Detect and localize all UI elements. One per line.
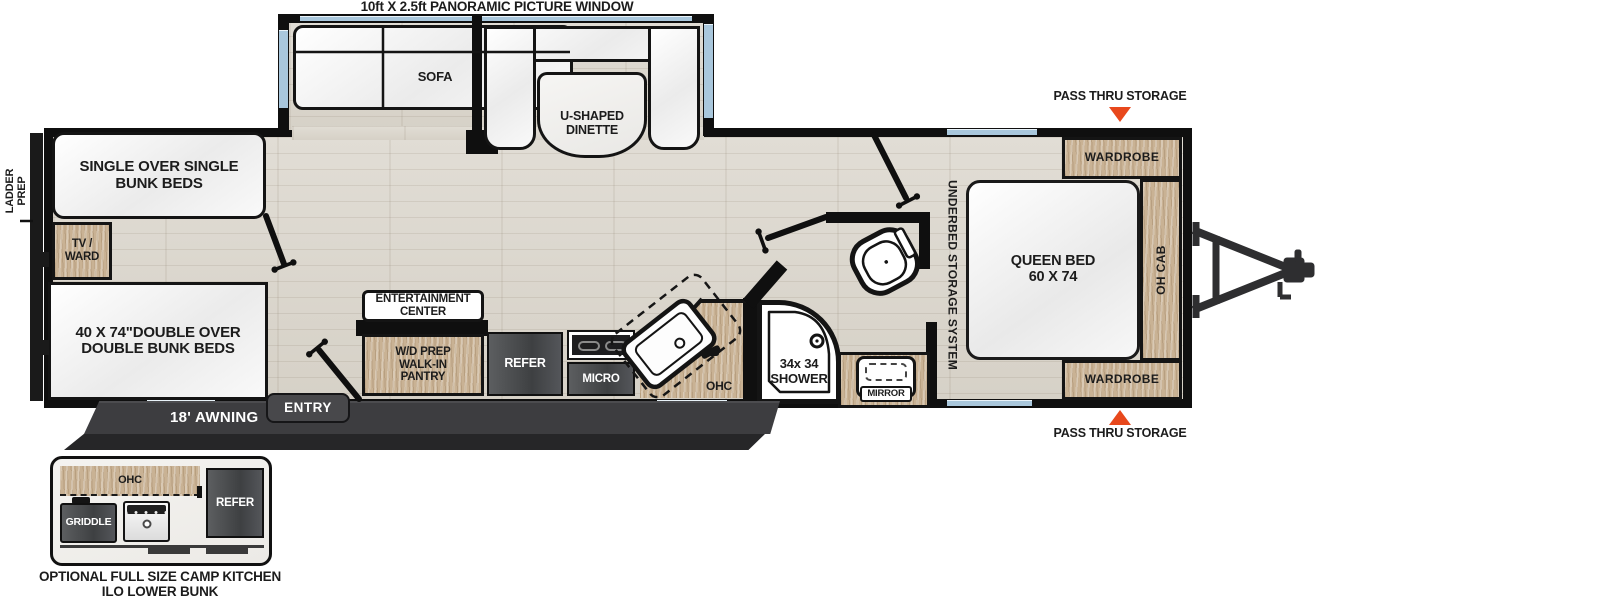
double-bunk-beds: 40 X 74"DOUBLE OVER DOUBLE BUNK BEDS xyxy=(48,282,268,400)
queen-bed: QUEEN BED 60 X 74 xyxy=(966,180,1140,360)
mirror-glass xyxy=(865,363,907,381)
awning-lower-rail xyxy=(64,433,766,450)
tv-ward-cabinet: TV / WARD xyxy=(52,222,112,280)
mirror-label-box: MIRROR xyxy=(860,386,912,402)
oh-cab: OH CAB xyxy=(1140,179,1182,361)
inset-griddle: GRIDDLE xyxy=(60,503,117,543)
burner-right xyxy=(605,341,627,351)
inset-caption: OPTIONAL FULL SIZE CAMP KITCHEN ILO LOWE… xyxy=(20,569,300,599)
pantry-label: W/D PREP WALK-IN PANTRY xyxy=(395,346,450,384)
entertainment-center: ENTERTAINMENT CENTER xyxy=(362,290,484,322)
pass-thru-bottom-arrow xyxy=(1109,410,1131,425)
griddle-label: GRIDDLE xyxy=(66,517,112,529)
entertainment-label: ENTERTAINMENT CENTER xyxy=(376,293,471,318)
pass-thru-bottom-label: PASS THRU STORAGE xyxy=(1040,427,1200,441)
pass-thru-top-label: PASS THRU STORAGE xyxy=(1040,90,1200,104)
shower-label: 34x 34 SHOWER xyxy=(762,357,836,386)
front-top-window xyxy=(947,129,1037,135)
panoramic-window xyxy=(300,16,692,21)
bath-wall-left xyxy=(743,298,757,402)
inset-ohc-cabinet: OHC xyxy=(60,466,200,496)
bath-wall-right-upper xyxy=(919,212,930,269)
tv-ward-label: TV / WARD xyxy=(65,238,99,263)
bumper-tab-lower xyxy=(43,340,49,355)
wardrobe-bottom: WARDROBE xyxy=(1062,360,1182,400)
floorplan-canvas: 10ft X 2.5ft PANORAMIC PICTURE WINDOW SO… xyxy=(0,0,1600,600)
bumper-tab-upper xyxy=(43,252,49,267)
micro-label: MICRO xyxy=(582,373,619,386)
bath-wall-top xyxy=(826,212,930,223)
coupler-latch xyxy=(1295,250,1301,262)
refer-appliance: REFER xyxy=(487,332,563,396)
wardrobe-top: WARDROBE xyxy=(1062,137,1182,179)
entry-label: ENTRY xyxy=(284,401,332,416)
micro-appliance: MICRO xyxy=(567,362,635,396)
queen-bed-label: QUEEN BED 60 X 74 xyxy=(1011,254,1095,286)
inset-ohc-label: OHC xyxy=(118,474,142,486)
double-bunk-label: 40 X 74"DOUBLE OVER DOUBLE BUNK BEDS xyxy=(75,325,240,358)
hitch-coupler xyxy=(1284,258,1304,282)
cooktop xyxy=(567,330,635,360)
dinette-bench-left xyxy=(484,26,536,150)
inset-ohc-end xyxy=(197,486,202,498)
dinette-bench-right xyxy=(648,26,700,150)
single-bunk-beds: SINGLE OVER SINGLE BUNK BEDS xyxy=(52,132,266,219)
inset-foot-left xyxy=(148,548,190,554)
slideout-left-window xyxy=(279,30,288,108)
stove-control-panel xyxy=(127,505,166,514)
sofa-label: SOFA xyxy=(405,70,465,84)
underbed-storage-label: UNDERBED STORAGE SYSTEM xyxy=(941,172,963,377)
inset-stove xyxy=(123,501,170,542)
single-bunk-label: SINGLE OVER SINGLE BUNK BEDS xyxy=(80,159,239,192)
panoramic-window-title: 10ft X 2.5ft PANORAMIC PICTURE WINDOW xyxy=(281,0,713,15)
mirror-label: MIRROR xyxy=(867,389,904,399)
underbed-storage-label-wrap: UNDERBED STORAGE SYSTEM xyxy=(941,172,963,377)
dinette-label: U-SHAPED DINETTE xyxy=(560,110,624,138)
ladder-prep-wrap: LADDER PREP xyxy=(0,168,44,214)
wardrobe-top-label: WARDROBE xyxy=(1085,151,1160,164)
inset-refer-label: REFER xyxy=(216,497,254,510)
stove-burner xyxy=(142,520,151,529)
wardrobe-bottom-label: WARDROBE xyxy=(1085,373,1160,386)
burner-left xyxy=(578,341,600,351)
slideout-right-window xyxy=(704,24,713,118)
inset-foot-right xyxy=(206,548,248,554)
awning-bar: 18' AWNING xyxy=(84,401,780,434)
refer-label: REFER xyxy=(504,357,545,371)
awning-label: 18' AWNING xyxy=(170,401,259,434)
ohc-label: OHC xyxy=(696,380,742,393)
slideout-divider-wall xyxy=(472,16,482,134)
trailer-hitch xyxy=(1193,222,1314,318)
pantry-cabinet: W/D PREP WALK-IN PANTRY xyxy=(362,334,484,396)
inset-refer: REFER xyxy=(206,468,264,538)
pass-thru-top-arrow xyxy=(1109,107,1131,122)
entry-tab: ENTRY xyxy=(266,393,350,423)
ladder-prep-label: LADDER PREP xyxy=(0,163,39,219)
bedroom-bottom-window xyxy=(947,400,1032,406)
oh-cab-label: OH CAB xyxy=(1141,179,1181,361)
dinette-table: U-SHAPED DINETTE xyxy=(537,72,647,158)
